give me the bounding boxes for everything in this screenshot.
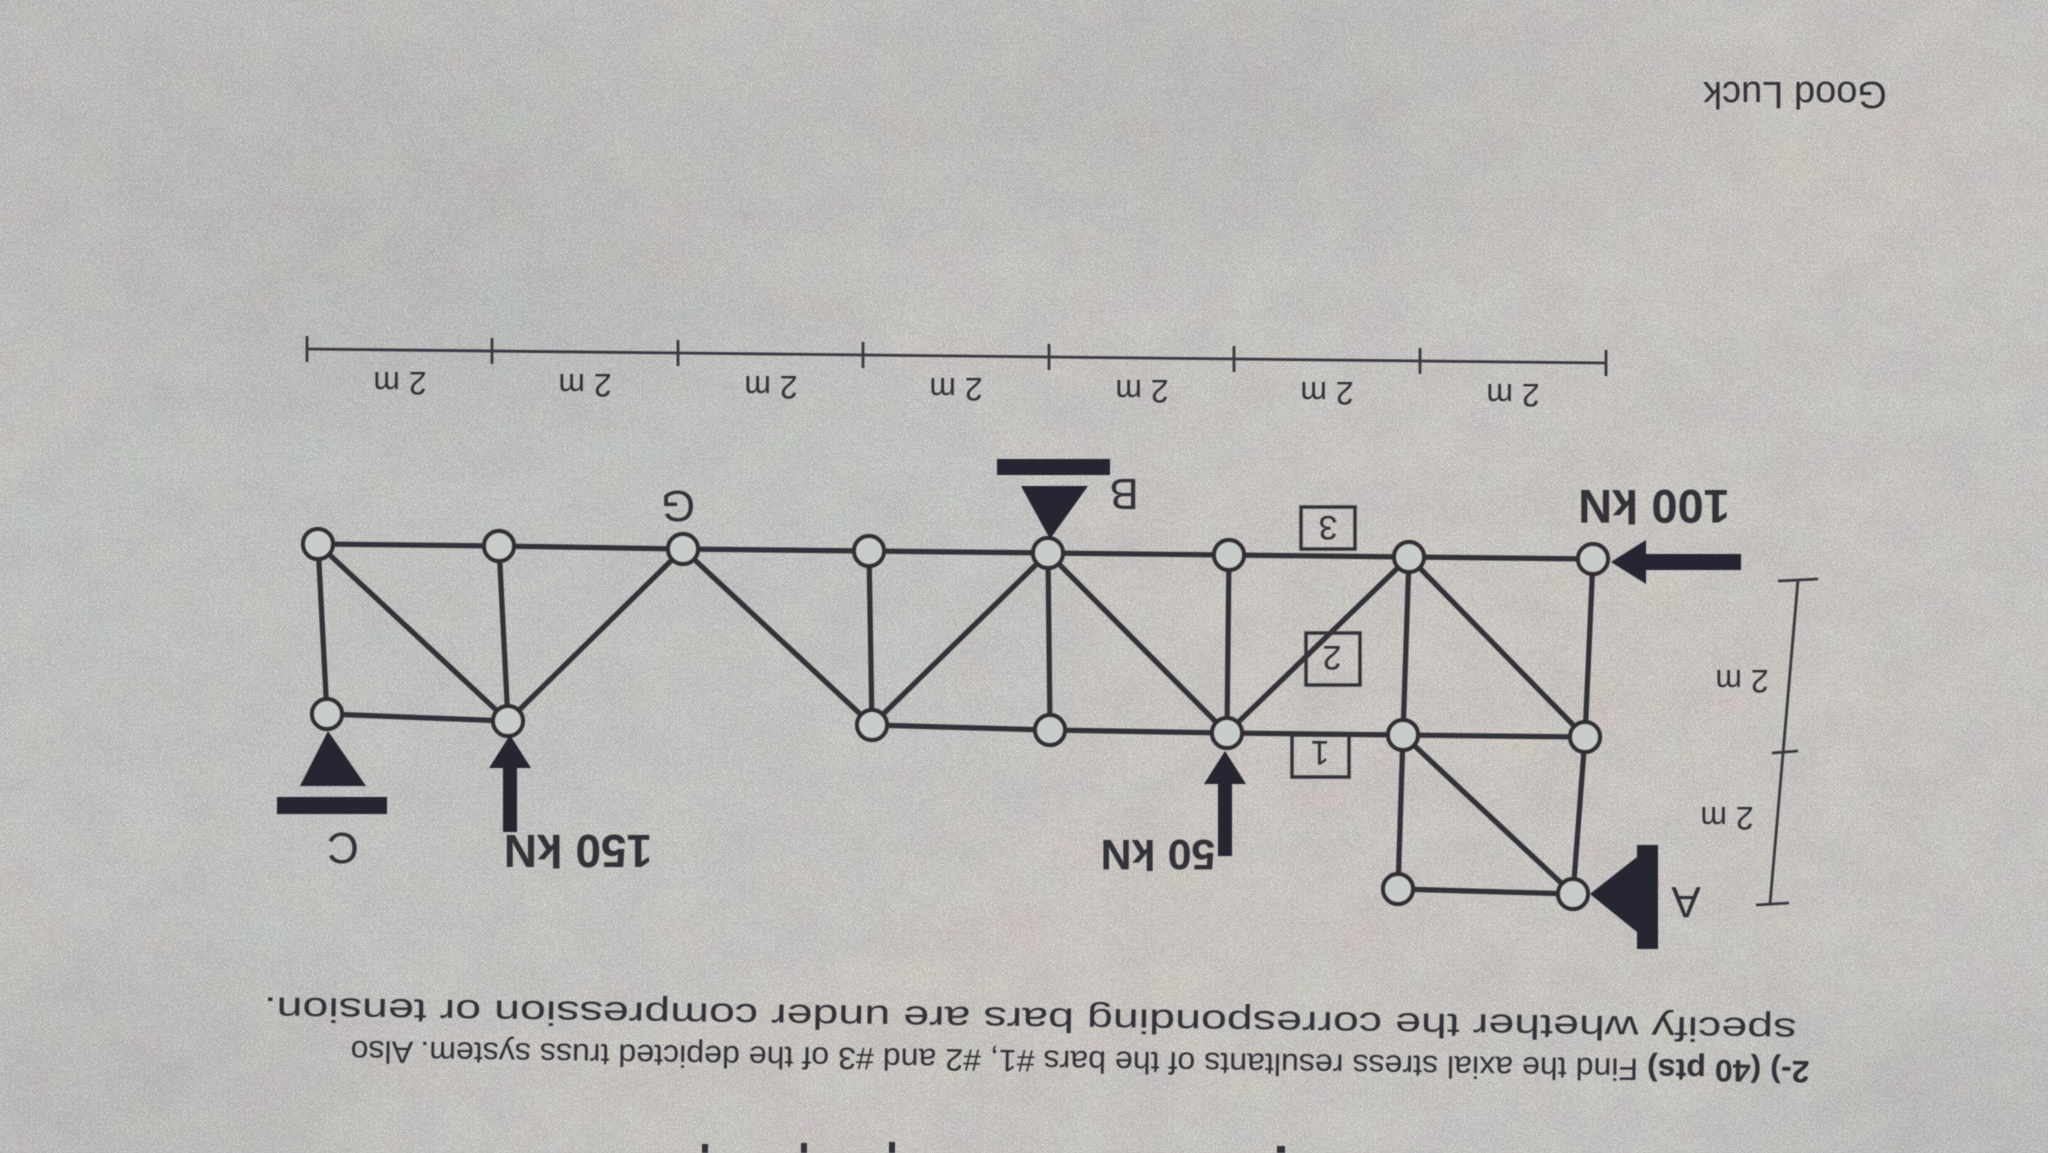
svg-text:C: C [327, 823, 359, 872]
svg-text:2 m: 2 m [744, 369, 797, 405]
svg-text:2 m: 2 m [1115, 373, 1168, 409]
svg-text:100 kN: 100 kN [1578, 480, 1730, 533]
svg-text:2 m: 2 m [1715, 663, 1768, 699]
svg-text:3: 3 [1319, 508, 1338, 546]
svg-text:50 kN: 50 kN [1101, 830, 1216, 878]
svg-text:G: G [661, 481, 695, 530]
svg-text:150 kN: 150 kN [504, 825, 652, 877]
svg-text:2 m: 2 m [558, 367, 611, 403]
svg-text:B: B [1109, 469, 1138, 518]
svg-text:Good Luck: Good Luck [1702, 73, 1887, 115]
svg-text:1: 1 [1311, 733, 1330, 771]
svg-text:2 m: 2 m [1486, 377, 1539, 413]
svg-text:A: A [1671, 877, 1701, 926]
svg-text:2 m: 2 m [1300, 375, 1353, 411]
svg-text:2 m: 2 m [929, 371, 982, 407]
svg-text:2: 2 [1323, 638, 1342, 676]
svg-text:2 m: 2 m [1700, 800, 1753, 836]
svg-text:2 m: 2 m [373, 365, 426, 401]
